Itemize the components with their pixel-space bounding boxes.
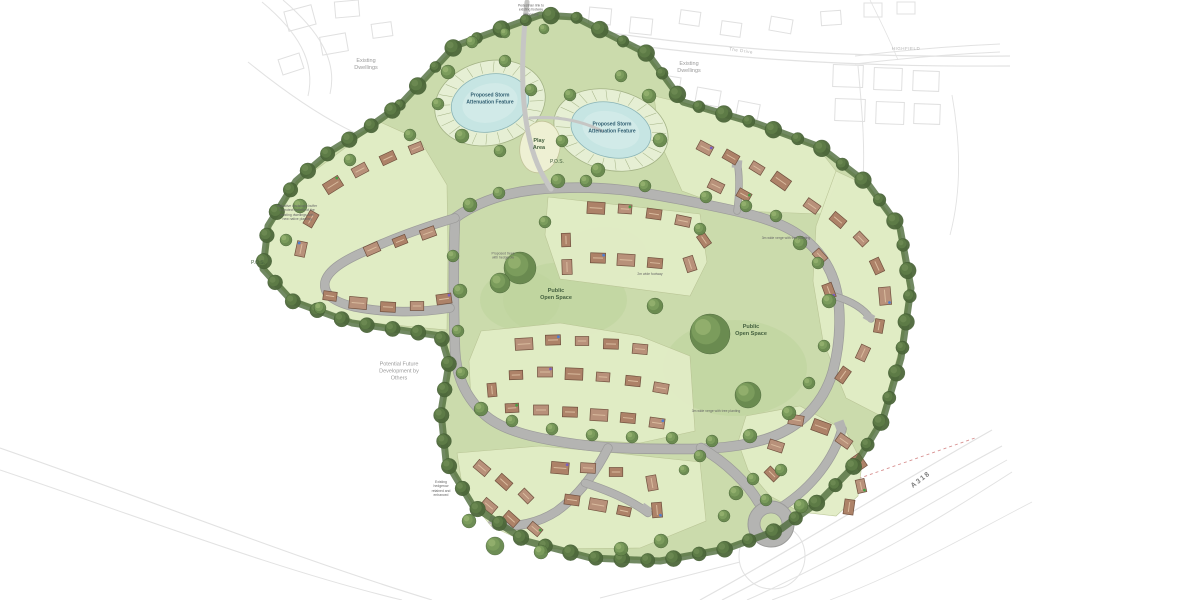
- boundary-tree: [638, 45, 655, 62]
- house: [588, 498, 607, 513]
- house: [534, 405, 549, 415]
- boundary-tree: [513, 530, 529, 546]
- house: [590, 409, 608, 422]
- house: [590, 253, 605, 264]
- tree: [700, 191, 712, 203]
- boundary-tree: [589, 551, 603, 565]
- site-plan: Proposed Storm Attenuation Feature Propo…: [0, 0, 1200, 600]
- boundary-tree: [669, 86, 686, 103]
- boundary-tree: [437, 434, 452, 449]
- tree: [462, 514, 476, 528]
- house: [562, 407, 577, 418]
- site-plan-canvas: [0, 0, 1200, 600]
- tree: [735, 382, 761, 408]
- tree: [432, 98, 444, 110]
- tree: [653, 133, 667, 147]
- tree: [404, 129, 416, 141]
- context-road: [248, 62, 362, 136]
- boundary-tree: [888, 365, 905, 382]
- house: [653, 382, 670, 394]
- house: [878, 287, 891, 306]
- house: [609, 468, 623, 477]
- road: [737, 167, 739, 211]
- tree: [463, 198, 477, 212]
- boundary-tree: [409, 77, 426, 94]
- house: [562, 259, 573, 274]
- tree: [818, 340, 830, 352]
- boundary-tree: [542, 7, 559, 24]
- boundary-tree: [887, 213, 904, 230]
- tree: [500, 28, 510, 38]
- boundary-tree: [899, 262, 916, 279]
- boundary-tree: [792, 133, 804, 145]
- tree: [280, 234, 292, 246]
- tree: [666, 432, 678, 444]
- tree: [747, 473, 759, 485]
- house: [410, 302, 424, 311]
- context-building: [897, 2, 915, 14]
- tree: [803, 377, 815, 389]
- boundary-tree: [300, 163, 316, 179]
- boundary-tree: [765, 524, 781, 540]
- tree: [486, 537, 504, 555]
- tree: [743, 429, 757, 443]
- car-marker: [549, 368, 552, 371]
- tree: [615, 70, 627, 82]
- house: [617, 254, 635, 267]
- boundary-tree: [455, 481, 470, 496]
- house: [646, 475, 658, 492]
- boundary-tree: [897, 239, 910, 252]
- boundary-tree: [896, 341, 909, 354]
- tree: [441, 65, 455, 79]
- house: [561, 233, 570, 247]
- context-building: [679, 10, 701, 27]
- context-road: [830, 502, 1032, 600]
- tree: [453, 284, 467, 298]
- house: [509, 370, 523, 379]
- tree: [706, 435, 718, 447]
- tree: [499, 55, 511, 67]
- context-building: [629, 17, 653, 35]
- house: [436, 293, 452, 305]
- house: [603, 339, 618, 350]
- context-building: [720, 21, 742, 38]
- boundary-tree: [334, 312, 349, 327]
- tree: [539, 24, 549, 34]
- context-building: [320, 33, 349, 55]
- tree: [642, 89, 656, 103]
- context-building: [284, 5, 316, 32]
- tree: [740, 200, 752, 212]
- context-road: [870, 0, 898, 60]
- house: [618, 204, 632, 214]
- context-building: [278, 53, 304, 75]
- boundary-tree: [693, 101, 705, 113]
- tree: [455, 129, 469, 143]
- house: [515, 338, 533, 351]
- tree: [494, 145, 506, 157]
- boundary-tree: [563, 545, 579, 561]
- boundary-tree: [385, 321, 400, 336]
- context-road: [0, 470, 402, 600]
- tree: [466, 36, 478, 48]
- tree: [690, 314, 730, 354]
- house: [551, 461, 570, 474]
- house: [505, 403, 519, 413]
- boundary-tree: [492, 516, 507, 531]
- context-road: [262, 2, 310, 96]
- boundary-tree: [617, 35, 629, 47]
- tree: [452, 325, 464, 337]
- tree: [654, 534, 668, 548]
- boundary-tree: [836, 158, 849, 171]
- tree: [793, 236, 807, 250]
- tree: [493, 187, 505, 199]
- boundary-tree: [813, 140, 830, 157]
- boundary-tree: [855, 172, 872, 189]
- boundary-tree: [268, 275, 283, 290]
- tree: [525, 84, 537, 96]
- tree: [694, 450, 706, 462]
- tree: [647, 298, 663, 314]
- context-building: [864, 3, 882, 17]
- tree: [506, 415, 518, 427]
- boundary-tree: [641, 553, 655, 567]
- tree: [812, 257, 824, 269]
- boundary-tree: [571, 12, 583, 24]
- house: [873, 319, 884, 334]
- tree: [591, 163, 605, 177]
- tree: [639, 180, 651, 192]
- house: [843, 499, 855, 515]
- boundary-tree: [829, 478, 843, 492]
- boundary-tree: [256, 253, 272, 269]
- boundary-tree: [743, 115, 755, 127]
- tree: [775, 464, 787, 476]
- boundary-tree: [434, 407, 450, 423]
- house: [323, 291, 338, 302]
- tree: [770, 210, 782, 222]
- boundary-tree: [903, 290, 916, 303]
- tree: [344, 154, 356, 166]
- context-road: [0, 448, 432, 600]
- tree: [679, 465, 689, 475]
- tree: [794, 499, 808, 513]
- tree: [293, 199, 307, 213]
- context-building: [334, 0, 359, 18]
- tree: [614, 542, 628, 556]
- boundary-tree: [692, 547, 706, 561]
- house: [651, 502, 662, 518]
- boundary-tree: [809, 495, 825, 511]
- context-building: [371, 22, 393, 39]
- house: [380, 302, 396, 313]
- boundary-tree: [441, 356, 456, 371]
- boundary-tree: [715, 106, 732, 123]
- boundary-tree: [364, 118, 378, 132]
- tree: [474, 402, 488, 416]
- context-road: [283, 0, 332, 94]
- context-road: [855, 44, 1000, 56]
- boundary-tree: [765, 121, 782, 138]
- house: [649, 417, 665, 429]
- boundary-tree: [845, 458, 861, 474]
- boundary-tree: [445, 39, 462, 56]
- tree: [534, 545, 548, 559]
- tree: [822, 294, 836, 308]
- boundary-tree: [359, 318, 374, 333]
- house: [596, 372, 610, 382]
- boundary-tree: [411, 325, 426, 340]
- boundary-tree: [384, 103, 400, 119]
- boundary-tree: [434, 331, 449, 346]
- house: [646, 208, 662, 220]
- house: [349, 296, 368, 309]
- boundary-tree: [883, 391, 896, 404]
- tree: [626, 431, 638, 443]
- boundary-tree: [717, 541, 733, 557]
- housing-parcel: [457, 446, 706, 549]
- house: [587, 202, 605, 215]
- tree: [551, 174, 565, 188]
- house: [545, 335, 560, 346]
- boundary-tree: [441, 458, 457, 474]
- context-building: [821, 10, 842, 25]
- boundary-tree: [341, 132, 357, 148]
- boundary-tree: [285, 294, 300, 309]
- boundary-tree: [898, 314, 915, 331]
- tree: [729, 486, 743, 500]
- boundary-tree: [260, 228, 275, 243]
- boundary-tree: [742, 534, 756, 548]
- tree: [447, 250, 459, 262]
- tree: [580, 175, 592, 187]
- house: [487, 383, 497, 397]
- house: [538, 367, 553, 377]
- house: [647, 257, 663, 268]
- boundary-tree: [789, 511, 803, 525]
- tree: [782, 406, 796, 420]
- context-road: [950, 95, 959, 235]
- boundary-tree: [665, 550, 681, 566]
- boundary-tree: [269, 204, 285, 220]
- tree: [564, 89, 576, 101]
- house: [564, 494, 580, 506]
- context-building: [913, 71, 940, 92]
- context-building: [769, 16, 793, 34]
- tree: [556, 135, 568, 147]
- boundary-tree: [437, 382, 452, 397]
- tree: [539, 216, 551, 228]
- boundary-tree: [873, 194, 886, 207]
- boundary-tree: [320, 147, 335, 162]
- house: [580, 463, 596, 474]
- boundary-tree: [430, 61, 441, 72]
- tree: [490, 273, 510, 293]
- boundary-tree: [861, 438, 875, 452]
- boundary-tree: [520, 14, 531, 25]
- tree: [314, 302, 326, 314]
- tree: [718, 510, 730, 522]
- house: [625, 375, 641, 387]
- context-building: [874, 68, 903, 91]
- house: [575, 337, 589, 346]
- tree: [456, 367, 468, 379]
- boundary-tree: [591, 21, 608, 38]
- boundary-tree: [873, 414, 889, 430]
- tree: [760, 494, 772, 506]
- context-building: [914, 104, 941, 125]
- boundary-tree: [283, 182, 298, 197]
- tree: [694, 223, 706, 235]
- boundary-tree: [656, 67, 668, 79]
- tree: [586, 429, 598, 441]
- house: [632, 343, 648, 354]
- tree: [546, 423, 558, 435]
- house: [620, 412, 636, 423]
- house: [565, 368, 583, 380]
- context-building: [876, 102, 905, 125]
